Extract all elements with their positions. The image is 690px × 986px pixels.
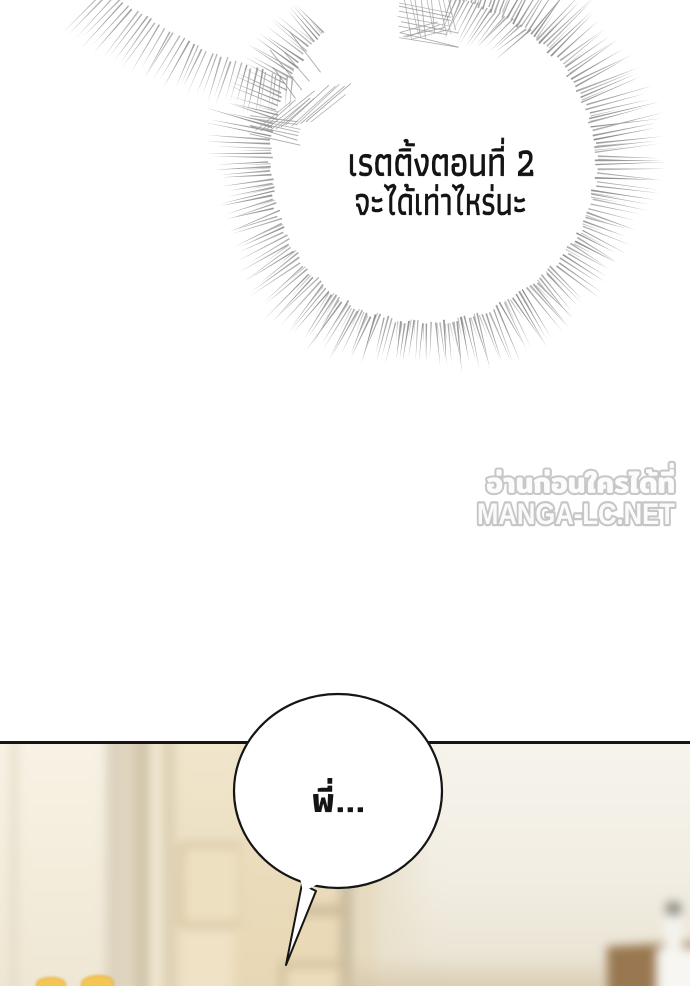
- svg-text:MANGA-LC.NET: MANGA-LC.NET: [477, 497, 675, 530]
